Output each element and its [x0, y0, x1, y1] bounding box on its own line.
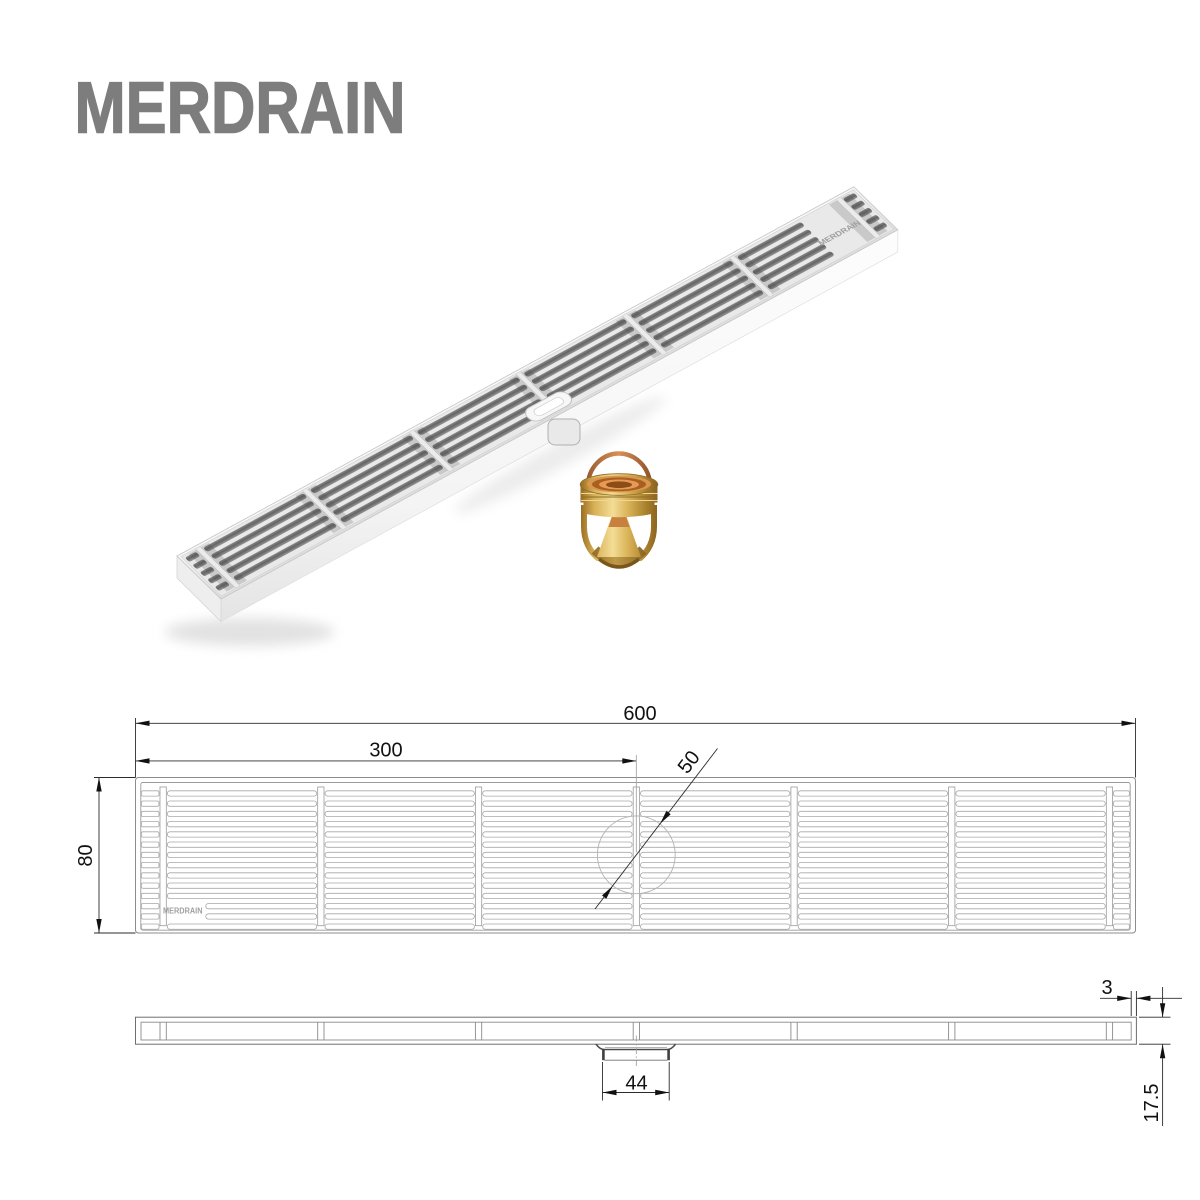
svg-text:3: 3	[1101, 977, 1112, 999]
svg-text:MERDRAIN: MERDRAIN	[163, 907, 203, 916]
svg-text:80: 80	[75, 844, 97, 866]
svg-text:17.5: 17.5	[1141, 1084, 1163, 1123]
svg-text:300: 300	[369, 740, 402, 762]
svg-text:50: 50	[674, 747, 705, 778]
svg-text:600: 600	[623, 703, 656, 725]
svg-text:44: 44	[625, 1073, 647, 1095]
svg-text:MERDRAIN: MERDRAIN	[75, 68, 406, 149]
